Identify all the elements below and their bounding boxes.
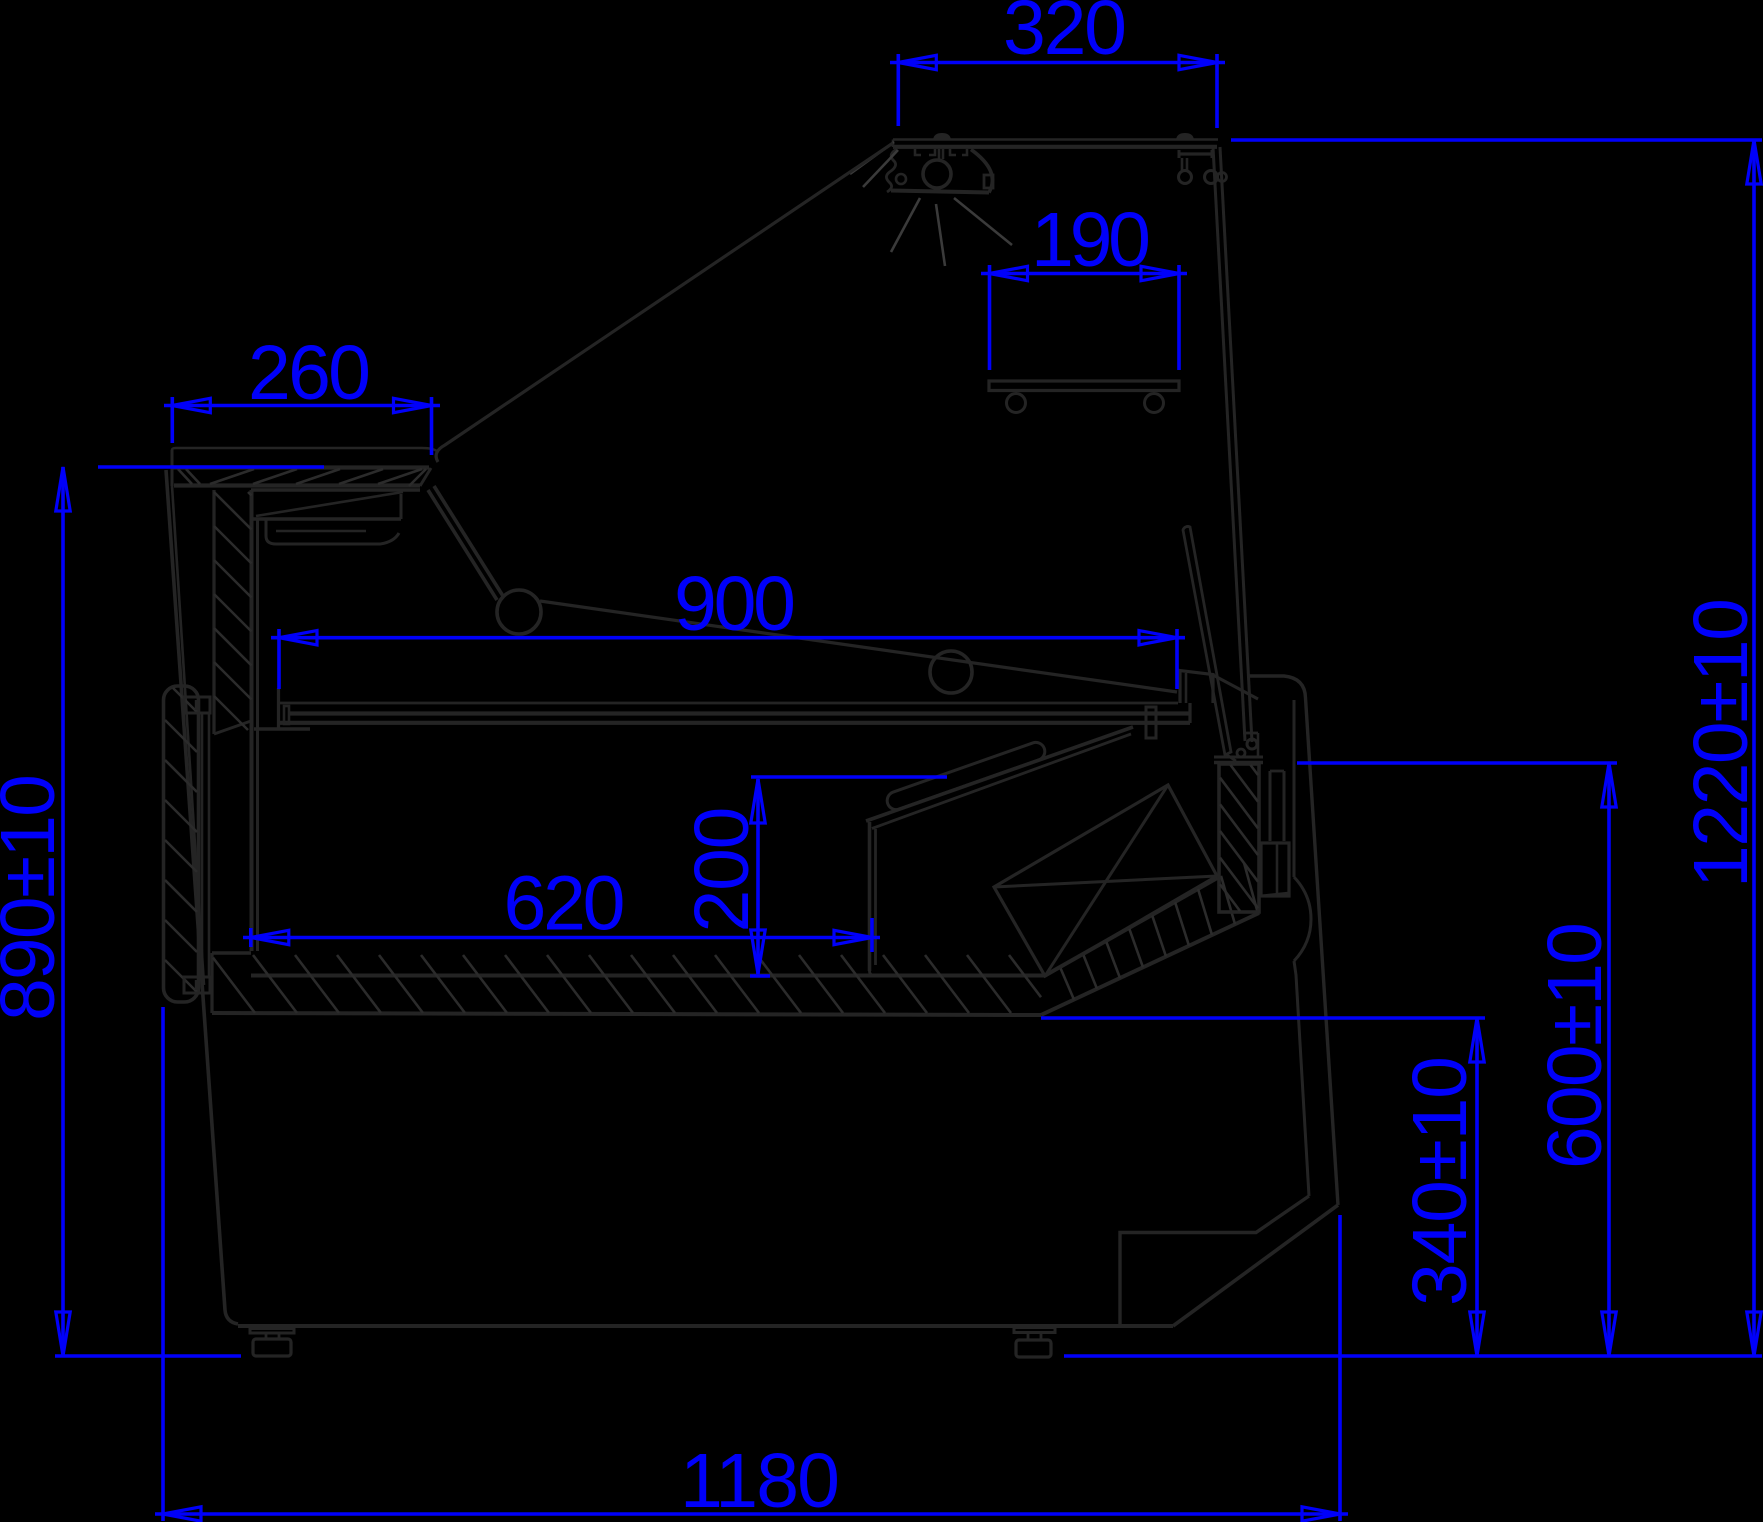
- svg-text:1180: 1180: [680, 1438, 840, 1522]
- svg-text:890±10: 890±10: [0, 774, 71, 1021]
- svg-text:600±10: 600±10: [1532, 922, 1618, 1169]
- svg-text:320: 320: [1003, 0, 1127, 71]
- svg-text:200: 200: [679, 807, 765, 933]
- svg-text:190: 190: [1031, 197, 1151, 283]
- svg-text:900: 900: [674, 561, 796, 647]
- svg-text:620: 620: [504, 861, 626, 947]
- svg-text:1220±10: 1220±10: [1678, 598, 1763, 888]
- svg-text:340±10: 340±10: [1397, 1056, 1483, 1306]
- svg-text:260: 260: [248, 330, 371, 416]
